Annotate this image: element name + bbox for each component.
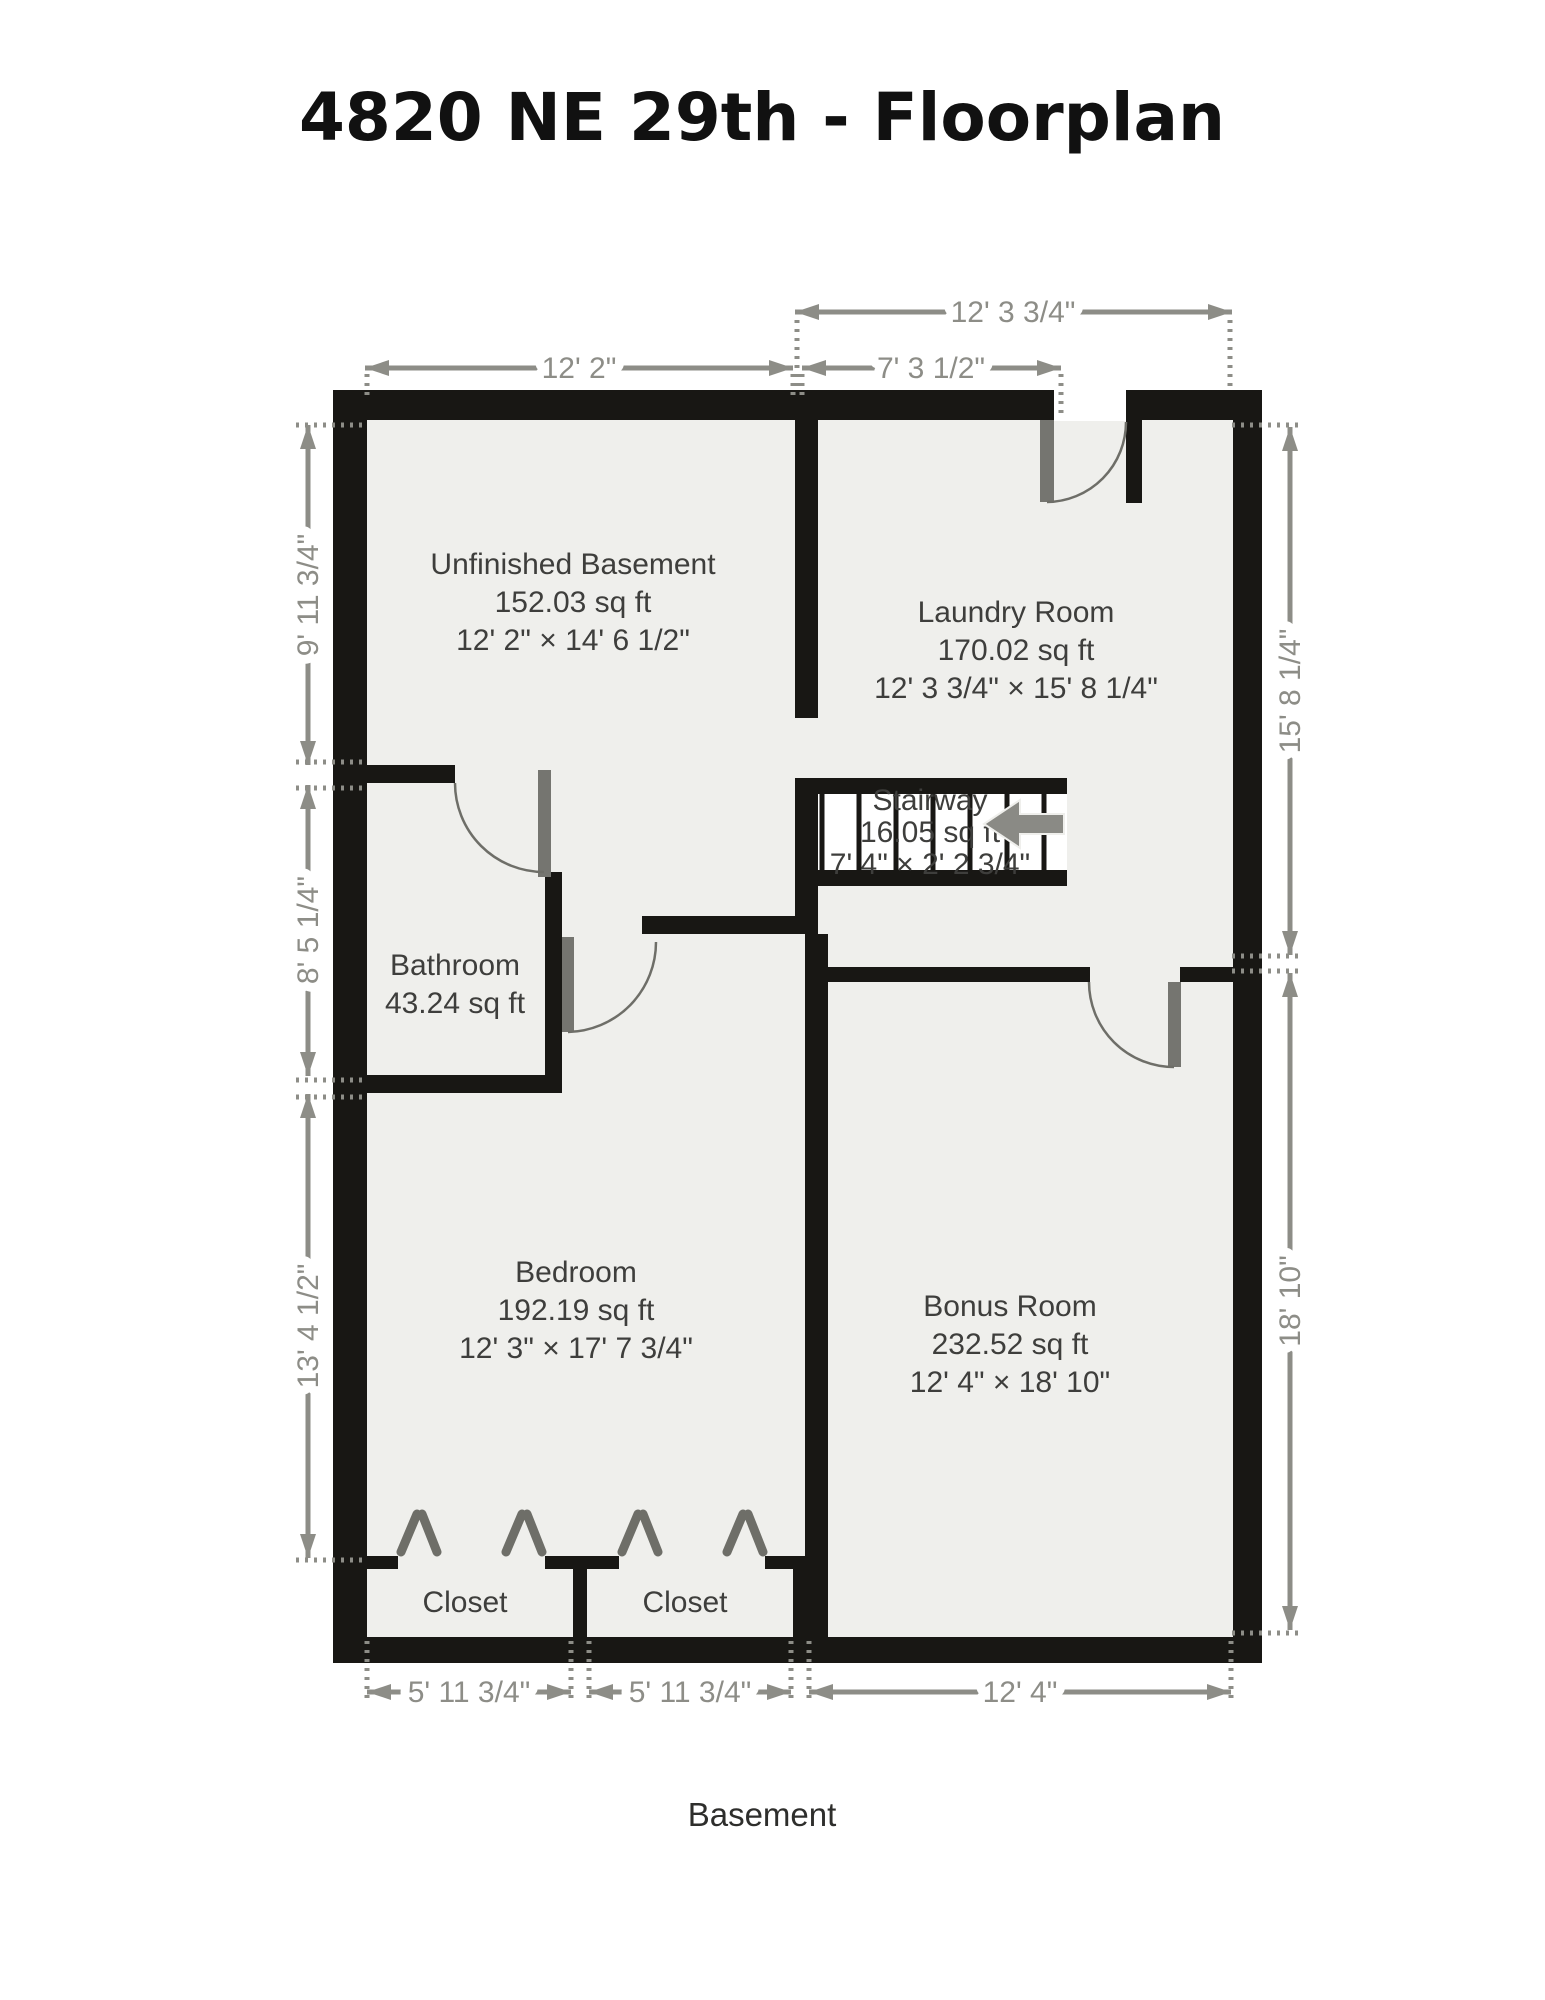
svg-text:43.24 sq ft: 43.24 sq ft (385, 987, 526, 1020)
svg-text:12' 4": 12' 4" (983, 1676, 1058, 1709)
page-title: 4820 NE 29th - Floorplan (299, 79, 1225, 156)
svg-text:12' 2" × 14' 6 1/2": 12' 2" × 14' 6 1/2" (456, 624, 690, 657)
svg-text:232.52 sq ft: 232.52 sq ft (932, 1328, 1089, 1361)
wall-basement-laundry (795, 398, 818, 718)
wall-bathroom-right (545, 872, 562, 1093)
svg-text:5' 11 3/4": 5' 11 3/4" (629, 1676, 752, 1709)
svg-text:Unfinished Basement: Unfinished Basement (430, 548, 716, 581)
svg-text:Laundry Room: Laundry Room (918, 596, 1115, 629)
room-label-closet-right: Closet (642, 1586, 728, 1619)
svg-text:12' 3" × 17' 7 3/4": 12' 3" × 17' 7 3/4" (459, 1332, 693, 1365)
svg-text:12' 4" × 18' 10": 12' 4" × 18' 10" (910, 1366, 1110, 1399)
svg-text:8' 5 1/4": 8' 5 1/4" (292, 876, 325, 984)
wall-closet-rightside (793, 1556, 807, 1637)
dimension-top-left: 12' 2" (365, 352, 793, 396)
entry-door-leaf (1040, 420, 1054, 502)
svg-text:Bedroom: Bedroom (515, 1256, 637, 1289)
wall-hallway-top (642, 916, 818, 934)
wall-bonus-left (805, 934, 828, 1654)
svg-text:Stairway: Stairway (872, 784, 987, 817)
floorplan-page: 4820 NE 29th - Floorplan (0, 0, 1545, 2000)
bathroom-door-leaf (538, 770, 551, 877)
hallway-door-leaf (562, 937, 574, 1032)
svg-text:18' 10": 18' 10" (1274, 1255, 1307, 1346)
svg-text:5' 11 3/4": 5' 11 3/4" (408, 1676, 531, 1709)
svg-text:12' 2": 12' 2" (542, 352, 617, 385)
svg-text:7' 3 1/2": 7' 3 1/2" (877, 352, 985, 385)
wall-stair-connector (795, 778, 818, 934)
room-label-closet-left: Closet (422, 1586, 508, 1619)
bonus-door-leaf (1168, 982, 1181, 1067)
svg-text:Bathroom: Bathroom (390, 949, 520, 982)
svg-text:152.03 sq ft: 152.03 sq ft (495, 586, 652, 619)
dimension-top-outer: 12' 3 3/4" (795, 296, 1232, 392)
floorplan-canvas: 4820 NE 29th - Floorplan (0, 0, 1545, 2000)
svg-text:170.02 sq ft: 170.02 sq ft (938, 634, 1095, 667)
wall-bathroom-bottom (352, 1075, 562, 1093)
wall-closet1-left (367, 1556, 398, 1569)
svg-text:9' 11 3/4": 9' 11 3/4" (292, 534, 325, 657)
svg-text:7' 4" × 2' 2 3/4": 7' 4" × 2' 2 3/4" (830, 848, 1030, 881)
entry-door-opening (1054, 388, 1126, 421)
wall-closet-divider (573, 1556, 587, 1637)
wall-bonus-top-left (828, 967, 1090, 982)
wall-entry-stub (1126, 420, 1142, 503)
svg-text:13' 4 1/2": 13' 4 1/2" (292, 1264, 325, 1389)
room-label-bonus-room: Bonus Room 232.52 sq ft 12' 4" × 18' 10" (910, 1290, 1110, 1399)
wall-bathroom-top (352, 765, 455, 783)
svg-text:192.19 sq ft: 192.19 sq ft (498, 1294, 655, 1327)
svg-text:12' 3 3/4" × 15' 8 1/4": 12' 3 3/4" × 15' 8 1/4" (874, 672, 1158, 705)
wall-bonus-top-right (1180, 967, 1233, 982)
svg-text:15' 8 1/4": 15' 8 1/4" (1274, 629, 1307, 754)
svg-text:16.05 sq ft: 16.05 sq ft (860, 816, 1001, 849)
floor-name-label: Basement (688, 1796, 837, 1833)
svg-text:12' 3 3/4": 12' 3 3/4" (951, 296, 1076, 329)
svg-text:Bonus Room: Bonus Room (923, 1290, 1096, 1323)
